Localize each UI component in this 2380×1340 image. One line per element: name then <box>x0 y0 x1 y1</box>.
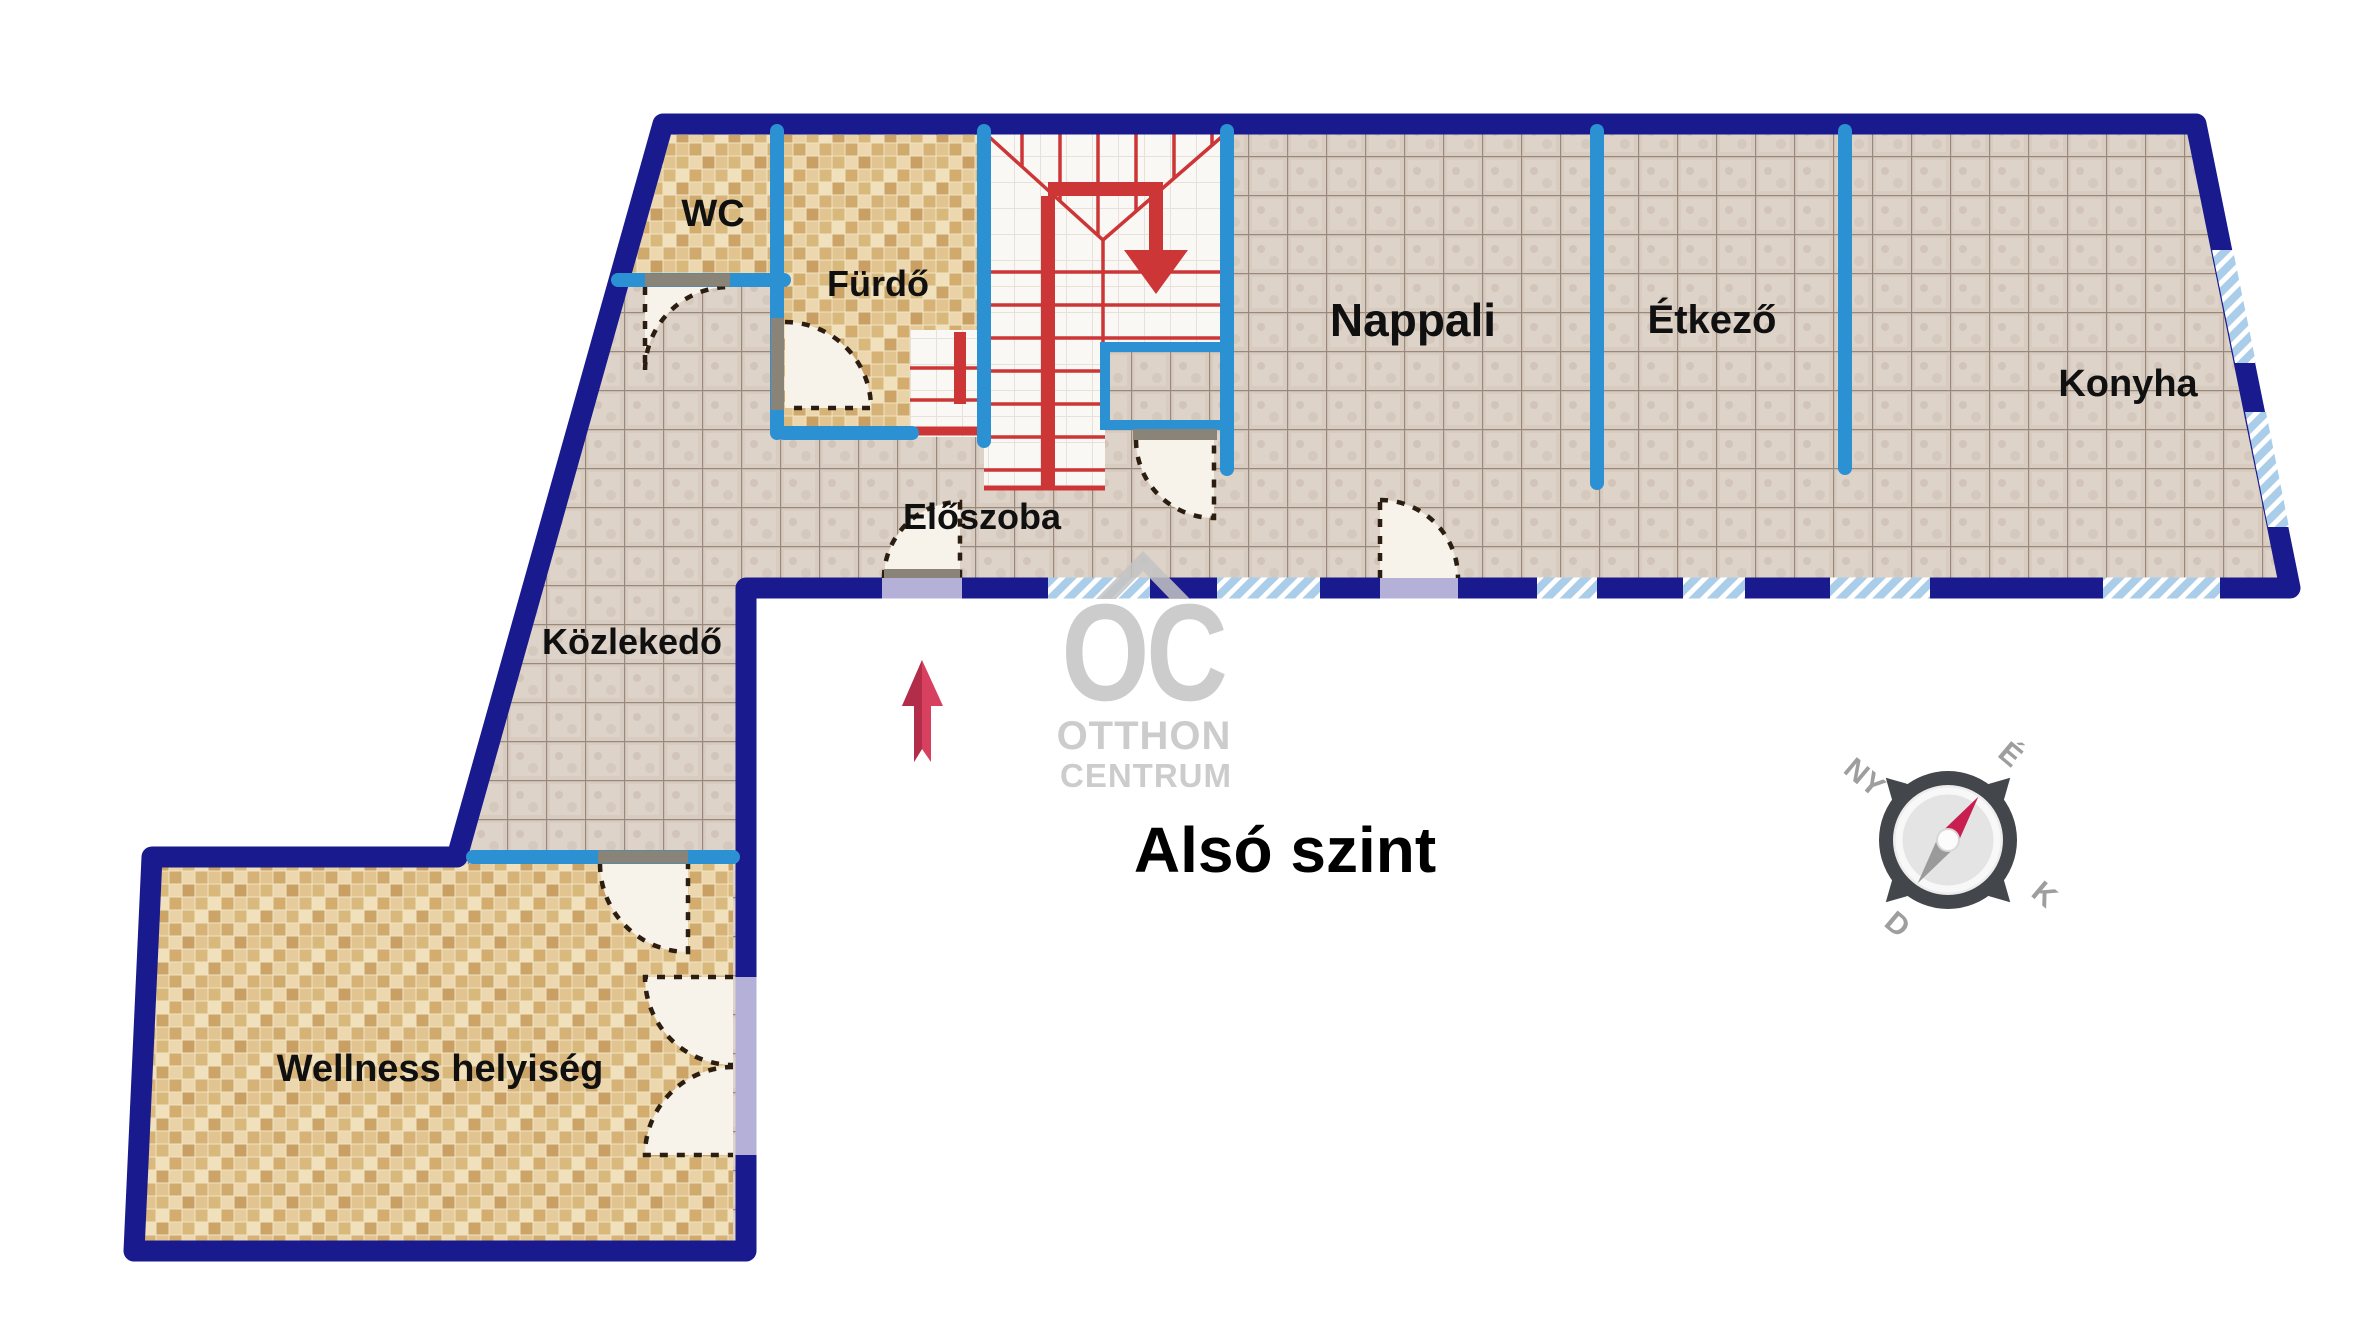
compass-west-label: NY <box>1838 752 1891 804</box>
floor-plan-page: OC OTTHON CENTRUM É NY K D WC Fürdő Elős… <box>0 0 2380 1340</box>
compass-south-label: D <box>1878 905 1916 944</box>
window <box>1830 578 1930 599</box>
watermark-logo: OC OTTHON CENTRUM <box>1057 551 1232 794</box>
watermark-centrum: CENTRUM <box>1060 757 1232 794</box>
room-label-wc: WC <box>681 193 744 235</box>
terrace-threshold <box>1380 578 1458 599</box>
wellness-door-leaf <box>598 851 688 864</box>
entrance-door-leaf <box>884 569 960 578</box>
window <box>1683 578 1745 599</box>
compass-pivot <box>1937 829 1959 851</box>
room-label-konyha: Konyha <box>2058 363 2198 405</box>
watermark-otthon: OTTHON <box>1057 714 1232 758</box>
window <box>1537 578 1597 599</box>
window <box>2103 578 2220 599</box>
room-label-wellness: Wellness helyiség <box>277 1048 604 1090</box>
french-door-threshold <box>736 977 757 1155</box>
entrance-threshold <box>882 578 962 599</box>
room-label-eloszoba: Előszoba <box>903 496 1062 537</box>
entrance-arrow <box>902 660 943 762</box>
furdo-door-leaf <box>771 318 784 410</box>
compass-east-label: K <box>2025 875 2063 914</box>
room-label-nappali: Nappali <box>1330 294 1496 346</box>
compass-north-label: É <box>1992 735 2029 774</box>
room-label-kozlekedo: Közlekedő <box>542 621 722 662</box>
room-label-etkezo: Étkező <box>1648 297 1777 342</box>
floor-title: Alsó szint <box>1134 814 1436 886</box>
window <box>1217 578 1320 599</box>
stair-closet-floor <box>1110 352 1227 420</box>
compass: É NY K D <box>1838 735 2064 944</box>
watermark-oc: OC <box>1061 575 1225 729</box>
closet-door-leaf <box>1133 429 1217 440</box>
floor-plan: OC OTTHON CENTRUM É NY K D WC Fürdő Elős… <box>0 0 2380 1340</box>
room-label-furdo: Fürdő <box>827 263 929 304</box>
wc-door-leaf <box>645 274 730 287</box>
